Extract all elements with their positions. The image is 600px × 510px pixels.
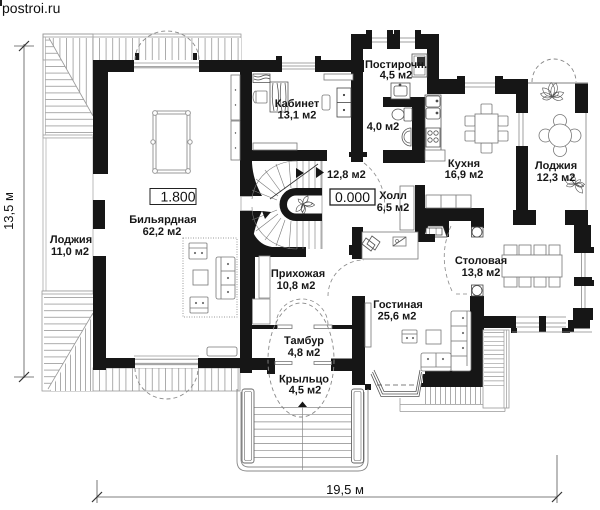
svg-text:Гостиная: Гостиная [373, 299, 423, 311]
svg-text:6,5 м2: 6,5 м2 [377, 202, 410, 214]
svg-text:12,3 м2: 12,3 м2 [537, 172, 576, 184]
svg-text:0.000: 0.000 [335, 189, 370, 205]
svg-text:4,5 м2: 4,5 м2 [380, 70, 413, 82]
svg-text:11,0 м2: 11,0 м2 [51, 246, 89, 258]
svg-text:19,5 м: 19,5 м [326, 482, 364, 497]
svg-text:13,5 м: 13,5 м [1, 192, 16, 230]
svg-text:13,1 м2: 13,1 м2 [278, 110, 317, 122]
svg-text:Тамбур: Тамбур [284, 335, 324, 347]
svg-text:postroi.ru: postroi.ru [2, 0, 60, 16]
svg-text:Прихожая: Прихожая [271, 268, 325, 280]
svg-text:12,8 м2: 12,8 м2 [327, 169, 366, 181]
svg-text:1.800: 1.800 [160, 189, 195, 205]
svg-text:10,8 м2: 10,8 м2 [277, 280, 316, 292]
svg-text:Кабинет: Кабинет [275, 98, 320, 110]
svg-text:13,8 м2: 13,8 м2 [462, 267, 501, 279]
svg-text:Бильярдная: Бильярдная [129, 214, 196, 226]
svg-text:16,9 м2: 16,9 м2 [445, 169, 484, 181]
svg-text:Лоджия: Лоджия [535, 160, 577, 172]
svg-text:4,5 м2: 4,5 м2 [289, 385, 322, 397]
svg-text:25,6 м2: 25,6 м2 [378, 311, 417, 323]
svg-text:Столовая: Столовая [455, 255, 507, 267]
svg-text:62,2 м2: 62,2 м2 [143, 226, 182, 238]
svg-text:Лоджия: Лоджия [50, 234, 92, 246]
svg-text:4,0 м2: 4,0 м2 [367, 121, 400, 133]
svg-text:4,8 м2: 4,8 м2 [288, 347, 321, 359]
